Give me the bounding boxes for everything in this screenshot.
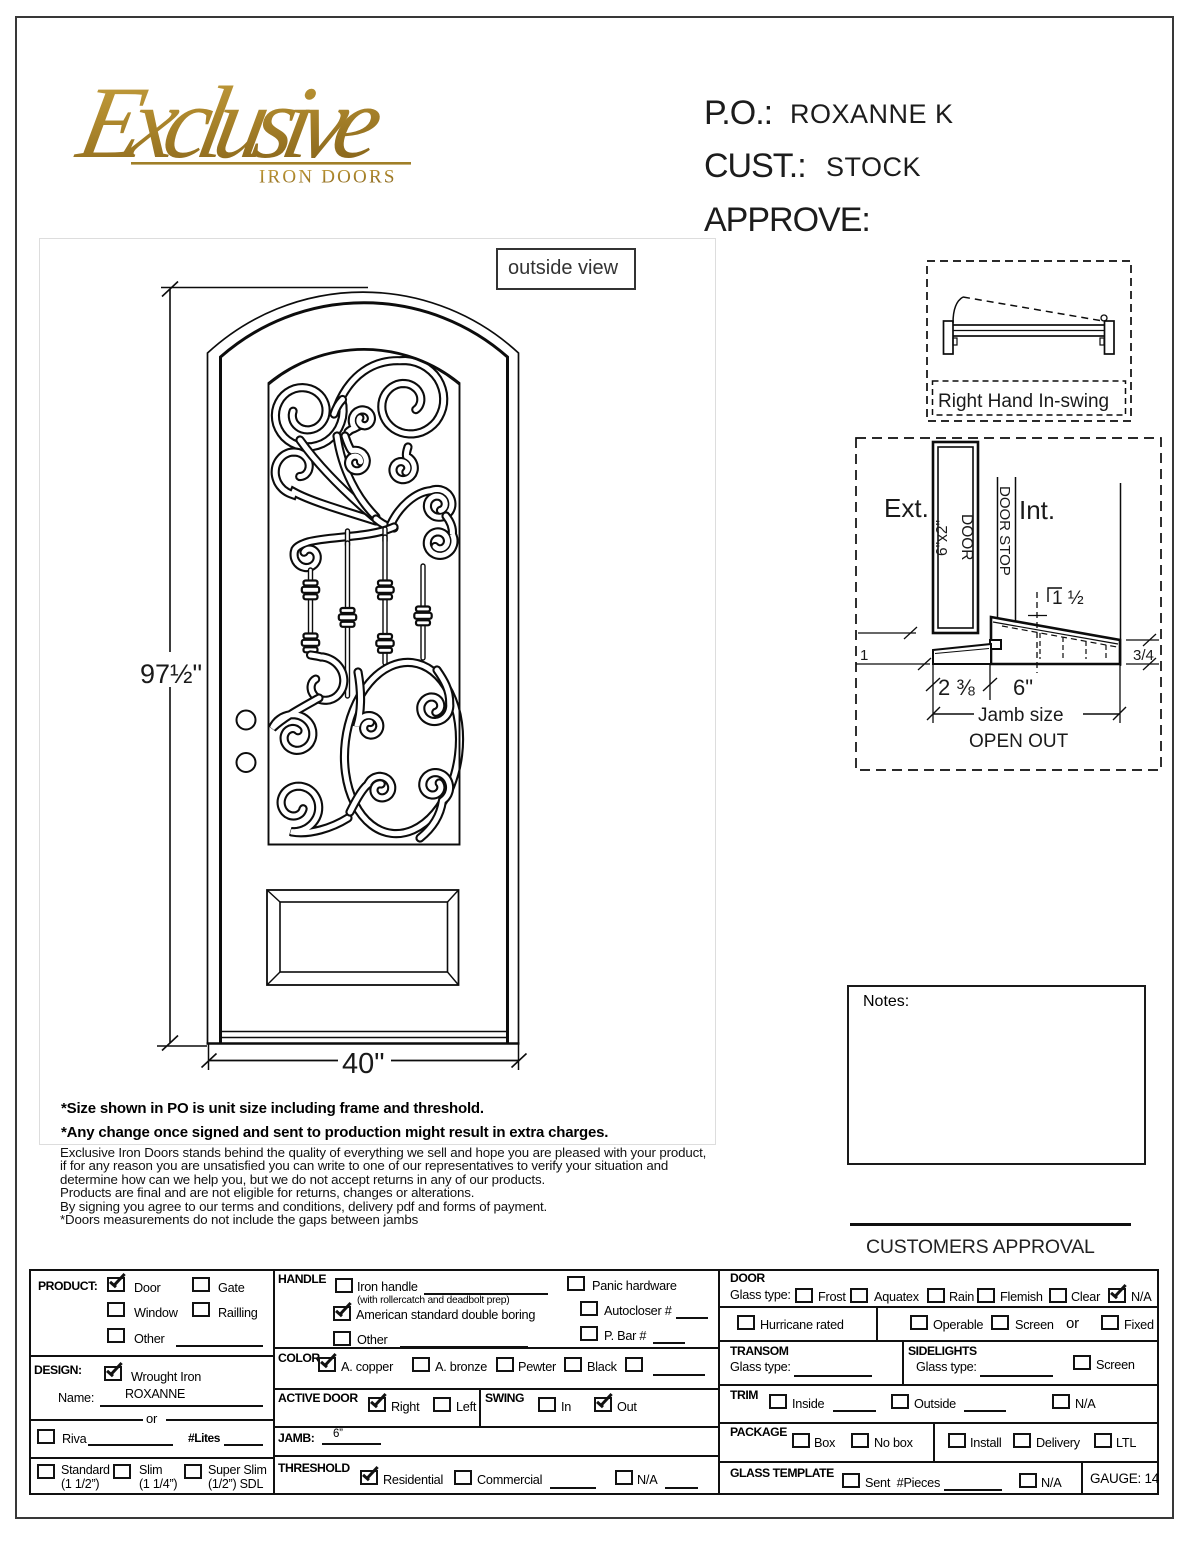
svg-text:Ext.: Ext. <box>884 493 929 523</box>
svg-text:DOOR STOP: DOOR STOP <box>996 486 1013 576</box>
svg-text:6": 6" <box>1013 675 1033 700</box>
svg-text:1: 1 <box>860 647 868 664</box>
svg-text:OPEN OUT: OPEN OUT <box>969 731 1069 752</box>
svg-text:6"x2": 6"x2" <box>934 520 951 556</box>
svg-text:40": 40" <box>342 1048 385 1080</box>
svg-text:3/4: 3/4 <box>1133 647 1154 664</box>
svg-text:1 ½: 1 ½ <box>1052 588 1084 609</box>
svg-text:Right Hand In-swing: Right Hand In-swing <box>938 391 1109 412</box>
svg-text:Jamb size: Jamb size <box>978 705 1064 726</box>
svg-text:97½": 97½" <box>140 659 202 689</box>
svg-text:DOOR: DOOR <box>958 514 975 561</box>
svg-text:2 ⅜: 2 ⅜ <box>938 675 975 700</box>
svg-text:Int.: Int. <box>1019 495 1055 525</box>
